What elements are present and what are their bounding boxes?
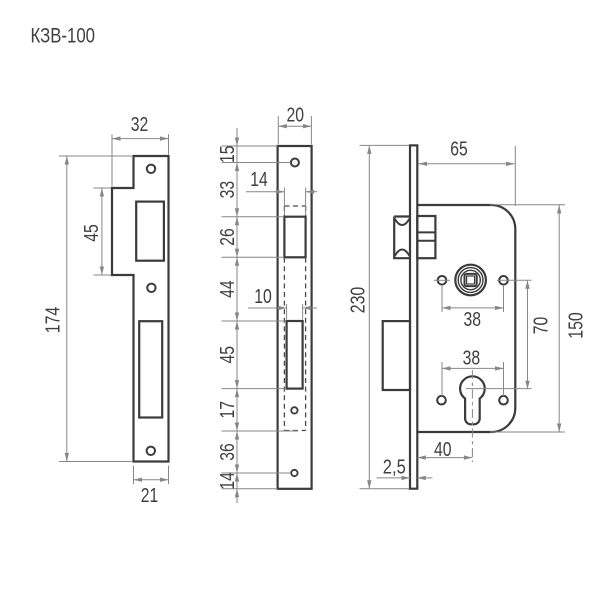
svg-text:38: 38 <box>464 309 482 331</box>
svg-text:150: 150 <box>565 312 587 339</box>
svg-text:17: 17 <box>217 401 239 419</box>
svg-text:2,5: 2,5 <box>383 457 406 479</box>
svg-text:26: 26 <box>217 228 239 246</box>
svg-text:174: 174 <box>43 307 65 334</box>
svg-text:38: 38 <box>463 347 481 369</box>
svg-text:40: 40 <box>434 439 452 461</box>
svg-text:21: 21 <box>141 485 159 507</box>
svg-text:45: 45 <box>81 224 103 242</box>
svg-text:15: 15 <box>217 146 239 164</box>
svg-text:14: 14 <box>250 169 268 191</box>
svg-text:14: 14 <box>217 472 239 490</box>
svg-text:20: 20 <box>286 105 304 127</box>
svg-text:32: 32 <box>131 114 149 136</box>
svg-text:230: 230 <box>347 287 369 314</box>
svg-text:70: 70 <box>531 317 553 335</box>
svg-text:36: 36 <box>217 443 239 461</box>
svg-text:33: 33 <box>217 181 239 199</box>
svg-text:65: 65 <box>450 139 468 161</box>
svg-text:45: 45 <box>217 346 239 364</box>
svg-text:44: 44 <box>217 280 239 298</box>
svg-text:КЗВ-100: КЗВ-100 <box>31 25 96 48</box>
svg-text:10: 10 <box>254 286 272 308</box>
